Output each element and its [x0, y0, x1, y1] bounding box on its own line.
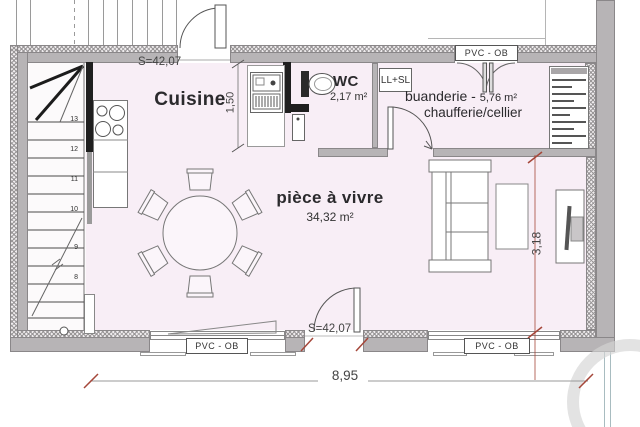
entrance-door [178, 5, 230, 60]
canopy-line [30, 0, 31, 46]
canopy-line [176, 0, 177, 46]
laundry-name: buanderie - [405, 88, 476, 104]
wall-laundry-living [433, 148, 596, 157]
exterior-edge-line [545, 0, 546, 45]
wall-right [596, 0, 615, 352]
canopy-line [103, 0, 104, 46]
room-label-laundry: buanderie - 5,76 m² [395, 88, 527, 104]
boundary-line [610, 352, 611, 427]
room-label-living: pièce à vivre [270, 188, 390, 208]
step-number: 13 [62, 116, 78, 123]
floor-plan: LL+SL [0, 0, 640, 427]
room-area-wc: 2,17 m² [330, 91, 367, 103]
wall-bottom [10, 337, 150, 352]
window-sill [140, 352, 186, 356]
washer-dryer-label: LL+SL [381, 75, 410, 86]
window-label-bottom-right: PVC - OB [464, 338, 530, 354]
window-label-bottom-right-text: PVC - OB [475, 341, 519, 351]
stairwell-floor [28, 63, 86, 330]
step-number: 8 [62, 274, 78, 281]
canopy-line [162, 0, 163, 46]
boundary-line [604, 352, 605, 427]
wall-bottom [285, 337, 305, 352]
dimension-living-depth: 3,18 [530, 224, 543, 264]
laundry-shelving [549, 66, 589, 149]
canopy-line [16, 0, 17, 46]
stair-closet-door [84, 294, 95, 334]
window-sill [433, 352, 467, 356]
canopy-line [88, 0, 89, 46]
room-label-wc: WC [333, 73, 359, 90]
dimension-kitchen-width: 1,50 [225, 84, 238, 122]
room-label-kitchen: Cuisine [145, 89, 235, 111]
wall-bottom [363, 337, 428, 352]
wall-wc-laundry [372, 63, 378, 148]
window-label-bottom-left: PVC - OB [186, 338, 248, 354]
window-sill [250, 352, 296, 356]
canopy-line [132, 0, 133, 46]
window-label-top-text: PVC - OB [465, 48, 509, 58]
kitchen-counter [93, 100, 128, 208]
step-number: 10 [62, 206, 78, 213]
wall-wc-south [283, 104, 309, 112]
canopy-line-dashed [74, 0, 75, 46]
wall-top [230, 52, 455, 63]
window-label-top: PVC - OB [455, 45, 518, 61]
laundry-area: 5,76 m² [480, 92, 517, 104]
step-number: 12 [62, 146, 78, 153]
room-label-boiler: chaufferie/cellier [410, 105, 536, 120]
wall-right-hatch-living [586, 157, 596, 330]
canopy-line [117, 0, 118, 46]
wall-laundry-living [318, 148, 388, 157]
wall-bottom [560, 337, 615, 352]
room-area-living: 34,32 m² [285, 210, 375, 224]
sink-unit [250, 72, 283, 113]
wc-door-leaf [292, 114, 305, 141]
wall-stair-kitchen [86, 62, 93, 152]
canopy-line [147, 0, 148, 46]
wall-stair-lower [87, 152, 92, 224]
wall-top [517, 52, 600, 63]
watermark-ring [573, 345, 640, 427]
entrance-area-label: S=42,07 [138, 56, 181, 68]
step-number: 11 [62, 176, 78, 183]
wall-left [17, 52, 28, 352]
window-label-bottom-left-text: PVC - OB [195, 341, 239, 351]
terrace-door-ticks [301, 338, 368, 351]
step-number: 9 [62, 244, 78, 251]
terrace-door-area-label: S=42,07 [308, 323, 351, 335]
porch-line [428, 38, 545, 39]
dimension-total-width: 8,95 [300, 368, 390, 383]
